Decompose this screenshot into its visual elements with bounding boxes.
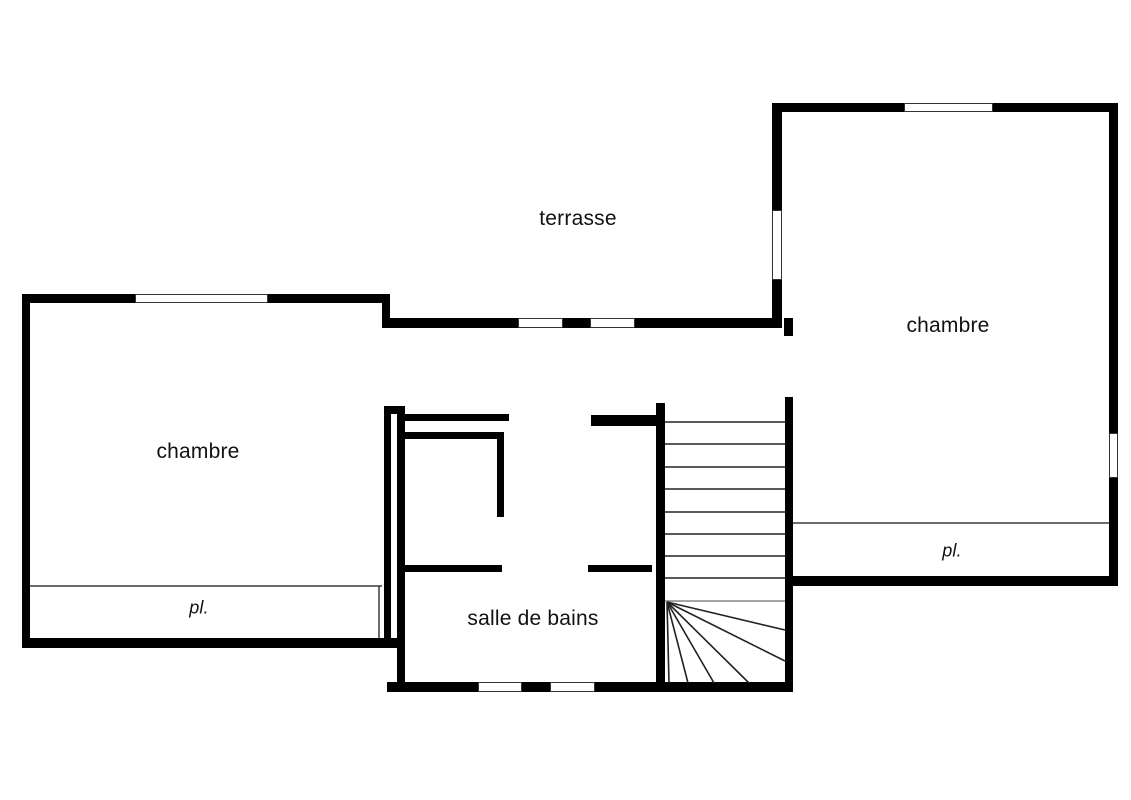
bath-fixture-top-wall <box>402 432 503 439</box>
left-room-top-wall-a <box>22 294 135 303</box>
stair-winder-line-1 <box>667 602 785 630</box>
stair-right-wall <box>785 397 793 692</box>
right-room-right-wall-lower <box>1109 478 1118 586</box>
right-room-right-window <box>1110 434 1118 478</box>
placard-left-label: pl. <box>189 598 209 619</box>
chambre-right-label: chambre <box>906 314 989 338</box>
bath-bottom-wall-c <box>595 682 793 692</box>
bath-mid-wall-right <box>588 565 652 572</box>
bath-left-wall <box>397 407 405 692</box>
stair-winder-line-3 <box>667 602 749 683</box>
right-room-right-wall-upper <box>1109 103 1118 433</box>
right-room-bottom-wall <box>785 576 1118 586</box>
terrasse-window-b <box>591 319 635 328</box>
terrasse-bottom-wall-c <box>635 318 782 328</box>
terrasse-window-a <box>519 319 563 328</box>
bath-bottom-window-b <box>551 683 595 692</box>
right-room-top-wall-b <box>993 103 1118 112</box>
left-room-bottom-wall <box>22 638 398 648</box>
bath-north-stub-wall <box>591 415 665 426</box>
floor-plan: terrassechambrechambresalle de bainspl.p… <box>0 0 1131 800</box>
placard-right-label: pl. <box>942 541 962 562</box>
left-room-left-wall <box>22 294 30 648</box>
left-room-top-window <box>136 295 268 303</box>
stair-winder-line-6 <box>667 602 669 683</box>
bath-bottom-window-a <box>479 683 522 692</box>
terrasse-bottom-wall-b <box>563 318 590 328</box>
right-room-top-wall-a <box>772 103 904 112</box>
right-room-top-window <box>905 104 993 112</box>
chambre-left-label: chambre <box>156 440 239 464</box>
salle-de-bains-label: salle de bains <box>467 607 598 631</box>
right-room-left-wall-upper <box>772 103 782 210</box>
terrasse-bottom-wall-a <box>382 318 518 328</box>
bath-north-inner-wall <box>403 414 509 421</box>
stair-winder-line-5 <box>667 602 688 683</box>
terrasse-label: terrasse <box>539 207 616 231</box>
stair-door-jamb <box>784 318 793 336</box>
left-room-top-wall-b <box>268 294 390 303</box>
floor-plan-drawing <box>0 0 1131 800</box>
left-room-right-wall <box>384 407 391 647</box>
bath-mid-wall-left <box>402 565 502 572</box>
bath-fixture-leg-wall <box>497 432 504 517</box>
right-room-left-wall-lower <box>772 280 782 328</box>
right-room-left-window <box>773 211 782 280</box>
stair-left-wall <box>656 403 665 692</box>
bath-bottom-wall-b <box>522 682 550 692</box>
